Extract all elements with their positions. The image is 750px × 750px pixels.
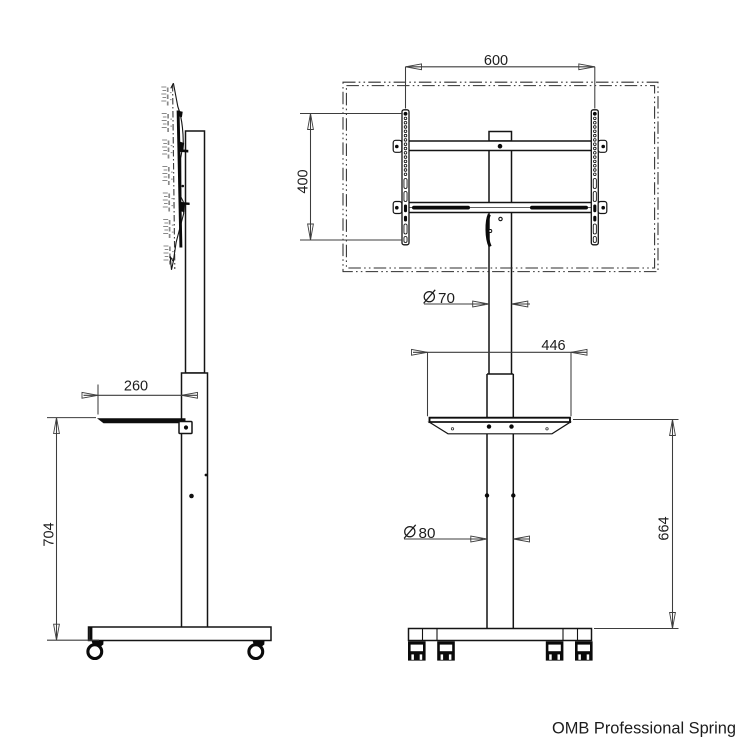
svg-text:70: 70 [438, 290, 455, 307]
svg-text:704: 704 [41, 522, 57, 546]
svg-text:446: 446 [541, 338, 565, 354]
svg-text:80: 80 [419, 525, 436, 542]
svg-text:OMB Professional Spring: OMB Professional Spring [552, 720, 736, 738]
svg-text:664: 664 [657, 516, 673, 540]
svg-text:260: 260 [124, 379, 148, 395]
svg-text:600: 600 [484, 53, 508, 69]
svg-text:400: 400 [296, 169, 312, 193]
